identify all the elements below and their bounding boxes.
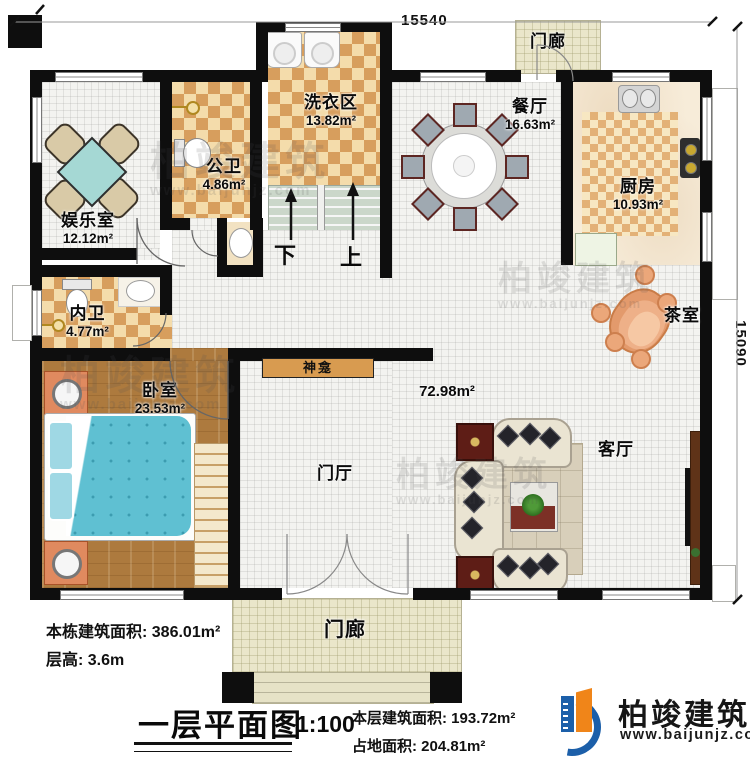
scale-label: 1:100 (296, 711, 355, 738)
fridge (575, 233, 617, 266)
footprint-note: 占地面积: 204.81m² (352, 735, 485, 756)
room-label-tea-room: 茶室 (650, 306, 714, 326)
room-label-dining: 餐厅 16.63m² (480, 97, 580, 132)
room-label-porch-top: 门廊 (508, 32, 588, 52)
bay-window-outline (12, 285, 32, 341)
room-label-living: 客厅 (584, 440, 648, 460)
room-label-public-bath: 公卫 4.86m² (181, 157, 267, 192)
wall (253, 218, 263, 265)
dimension-right: 15090 (732, 317, 749, 370)
bedroom-door-gap (170, 348, 228, 361)
kitchen-rug (582, 112, 678, 236)
window (420, 72, 486, 82)
stove-burner (685, 162, 697, 174)
shrine-label: 神龛 (303, 360, 333, 375)
porch-column (222, 672, 254, 703)
tv-icon (685, 468, 690, 546)
dimension-top: 15540 (398, 12, 451, 29)
wall (217, 265, 263, 277)
window (702, 97, 712, 161)
wall (228, 361, 240, 588)
room-label-inner-bath: 内卫 4.77m² (40, 304, 135, 339)
floor-height-note: 层高: 3.6m (46, 646, 124, 670)
wall (160, 265, 172, 315)
stairs-down-label: 下 (274, 238, 296, 270)
floor-area-note: 本层建筑面积: 193.72m² (352, 707, 515, 728)
terrace-outline (712, 565, 736, 602)
chair (453, 207, 477, 231)
window (32, 97, 42, 163)
wall (561, 230, 573, 265)
pillow (48, 471, 74, 521)
hall-area-label: 72.98m² (402, 383, 492, 400)
wall (160, 82, 172, 230)
window (60, 590, 184, 600)
plant-icon (522, 494, 544, 516)
stairs-up-label: 上 (340, 240, 362, 272)
stool (605, 332, 625, 352)
wall (160, 218, 190, 230)
page-title: 一层平面图 (138, 700, 303, 745)
window (602, 590, 690, 600)
window (55, 72, 143, 82)
chair (453, 103, 477, 127)
wall (30, 265, 172, 277)
floor-plan: 神龛 娱乐室 12.12m² 公卫 4.86m² 洗衣区 13.82m² 餐厅 … (0, 0, 750, 763)
room-label-porch-bottom: 门廊 (305, 619, 385, 642)
wardrobe (194, 443, 229, 588)
pillar (8, 15, 42, 48)
washing-machine-drum (311, 42, 334, 65)
kitchen-sink-bowl (640, 89, 656, 108)
towel-ring-icon (186, 101, 200, 115)
sink (126, 280, 155, 302)
brand-url: www.baijunjz.com (620, 727, 750, 743)
window (470, 590, 558, 600)
window (285, 23, 341, 32)
room-label-kitchen: 厨房 10.93m² (588, 177, 688, 212)
wall (30, 248, 137, 260)
washing-machine-drum (273, 42, 296, 65)
sink (229, 228, 253, 258)
entertainment-door-gap (137, 248, 160, 260)
terrace-outline (712, 88, 738, 300)
kitchen-sink-bowl (622, 89, 638, 108)
pillow (48, 421, 74, 471)
chair (401, 155, 425, 179)
stool (631, 349, 651, 369)
wall (380, 82, 392, 278)
stool (635, 265, 655, 285)
inner-bath-door-gap (160, 315, 172, 348)
room-label-bedroom: 卧室 23.53m² (110, 381, 210, 416)
stove-burner (685, 144, 697, 156)
plant-icon (691, 548, 700, 557)
wall (30, 348, 170, 361)
wall (250, 82, 262, 230)
wall (228, 348, 240, 361)
window (702, 212, 712, 262)
brand-logo (543, 684, 609, 748)
chair (505, 155, 529, 179)
window (612, 72, 670, 82)
room-label-laundry: 洗衣区 13.82m² (281, 93, 381, 128)
dining-table-center (453, 155, 475, 177)
wall (217, 218, 227, 265)
logo-building-orange-icon (576, 688, 592, 732)
lamp-icon (52, 549, 82, 579)
side-table (456, 423, 494, 461)
title-underline (134, 742, 292, 752)
room-label-entertainment: 娱乐室 12.12m² (38, 211, 138, 246)
stool (591, 303, 611, 323)
lamp-icon (52, 379, 82, 409)
public-bath-door-gap (190, 218, 217, 230)
room-label-foyer: 门厅 (303, 464, 367, 484)
logo-building-dashes (563, 699, 568, 729)
porch-column (430, 672, 462, 703)
wall (380, 22, 392, 82)
building-area-note: 本栋建筑面积: 386.01m² (46, 618, 220, 642)
shrine-box: 神龛 (262, 358, 374, 378)
